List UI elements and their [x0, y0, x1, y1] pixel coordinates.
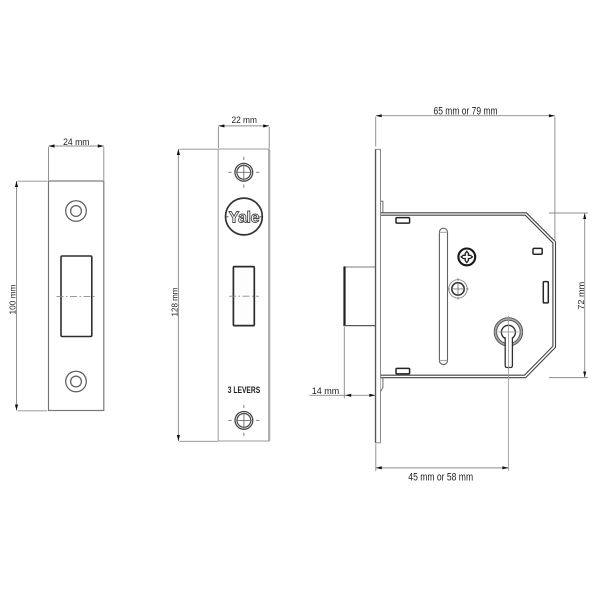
svg-text:22 mm: 22 mm [231, 115, 257, 126]
svg-text:72 mm: 72 mm [576, 282, 586, 310]
svg-text:100 mm: 100 mm [7, 285, 17, 315]
svg-text:3 LEVERS: 3 LEVERS [228, 385, 260, 395]
svg-text:14 mm: 14 mm [312, 386, 340, 396]
svg-text:65 mm or 79 mm: 65 mm or 79 mm [434, 106, 498, 118]
svg-text:24 mm: 24 mm [63, 137, 89, 148]
svg-text:45 mm or 58 mm: 45 mm or 58 mm [408, 471, 473, 483]
svg-text:128 mm: 128 mm [169, 288, 179, 317]
svg-text:Yale: Yale [229, 209, 260, 226]
